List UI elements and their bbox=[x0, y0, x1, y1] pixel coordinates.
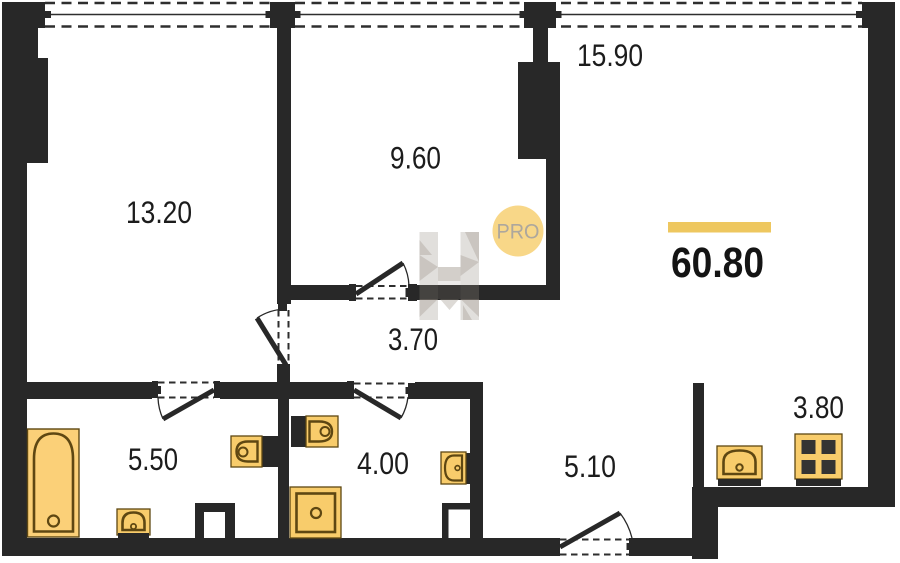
svg-text:13.20: 13.20 bbox=[126, 194, 192, 230]
svg-text:5.10: 5.10 bbox=[564, 448, 616, 484]
svg-text:3.70: 3.70 bbox=[388, 321, 438, 357]
svg-text:15.90: 15.90 bbox=[577, 37, 643, 73]
svg-text:3.80: 3.80 bbox=[793, 389, 844, 425]
svg-text:PRO: PRO bbox=[497, 221, 540, 244]
svg-text:60.80: 60.80 bbox=[671, 239, 764, 287]
svg-text:5.50: 5.50 bbox=[128, 441, 178, 477]
svg-text:9.60: 9.60 bbox=[390, 140, 441, 176]
svg-text:4.00: 4.00 bbox=[357, 445, 409, 481]
